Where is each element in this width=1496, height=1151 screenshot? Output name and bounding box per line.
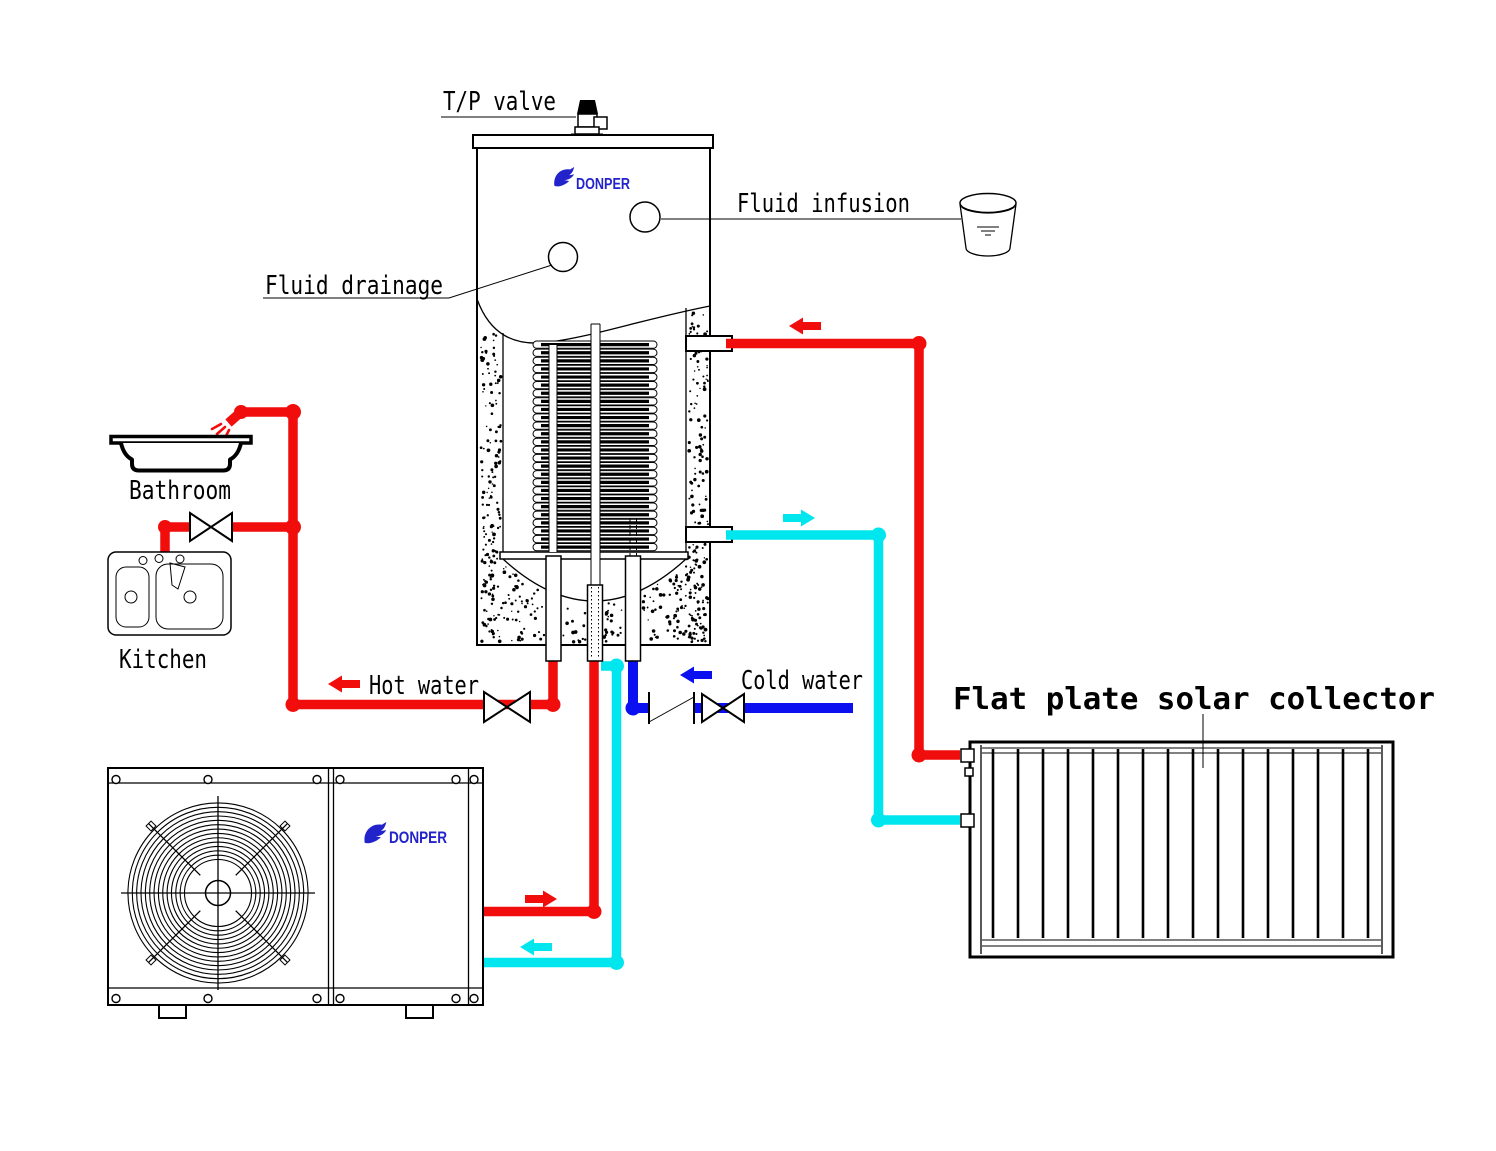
diagram-page: DONPER — [0, 0, 1496, 1146]
pipe-elbow-dot — [609, 955, 624, 970]
labels: T/P valve Fluid infusion Fluid drainage … — [119, 87, 1435, 717]
foot-left — [159, 1005, 186, 1018]
fluid-cup-icon — [960, 194, 1016, 257]
flow-arrow-left-icon — [520, 939, 552, 956]
stub-cold-water — [626, 556, 641, 661]
pipe-elbow-dot — [626, 701, 641, 716]
label-solar-collector-title: Flat plate solar collector — [953, 682, 1435, 717]
tp-valve-cap — [577, 100, 598, 114]
collector-port-hot — [961, 749, 974, 762]
internal-pipe-center — [591, 324, 600, 585]
pipe-elbow-dot — [871, 528, 886, 543]
pipe-elbow-dot — [912, 748, 927, 763]
pipe-elbow-dot — [286, 697, 301, 712]
cold-water-valve-icon — [702, 694, 744, 722]
pipe-elbow-dot — [546, 697, 561, 712]
pipe-tee-dot — [285, 519, 301, 535]
tp-valve-icon — [571, 100, 607, 135]
label-fluid-infusion: Fluid infusion — [737, 189, 910, 219]
heat-pump-cabinet — [108, 768, 483, 1005]
fan-grille — [121, 796, 315, 990]
fluid-drainage-port — [549, 243, 578, 272]
flow-arrow-right-icon — [783, 510, 815, 527]
hot-water-valve-icon — [484, 692, 530, 722]
diagram-canvas: DONPER — [0, 0, 1496, 1146]
label-hot-water: Hot water — [369, 671, 479, 701]
stub-hot-water — [546, 556, 561, 661]
fluid-infusion-port — [630, 202, 660, 232]
pipe-elbow-dot — [912, 336, 927, 351]
heat-pump-brand-text: DONPER — [389, 828, 447, 847]
flow-arrow-left-icon — [328, 676, 360, 693]
flow-arrow-left-icon — [789, 318, 821, 335]
flow-arrow-right-icon — [525, 891, 557, 908]
label-kitchen: Kitchen — [119, 645, 207, 675]
kitchen-sink-icon — [108, 552, 231, 635]
solar-collector — [961, 742, 1393, 957]
tank-port-solar-hot — [686, 336, 732, 351]
bathtub-icon — [111, 437, 251, 471]
collector-port-return — [961, 814, 974, 827]
tank-lid — [473, 135, 713, 148]
foot-right — [406, 1005, 433, 1018]
collector-port-small — [965, 768, 973, 776]
tp-valve-base — [575, 127, 599, 134]
storage-tank: DONPER — [473, 135, 732, 645]
flow-arrow-left-icon — [680, 667, 712, 684]
kitchen-valve-icon — [190, 513, 232, 541]
pipe-elbow-dot — [609, 659, 624, 674]
pipe-elbow-dot — [871, 813, 886, 828]
stub-heatpump — [588, 585, 603, 661]
tank-port-solar-return — [686, 527, 732, 542]
label-tp-valve: T/P valve — [443, 87, 556, 117]
cold-water-check-valve-icon — [649, 692, 694, 724]
label-cold-water: Cold water — [741, 666, 863, 696]
label-bathroom: Bathroom — [129, 476, 231, 506]
pipe-heatpump-hot — [481, 660, 594, 912]
pipe-elbow-dot — [285, 404, 301, 420]
collector-frame — [970, 742, 1393, 957]
pipe-elbow-dot — [587, 904, 602, 919]
internal-pipe-left — [549, 345, 557, 552]
tank-brand-text: DONPER — [576, 176, 630, 193]
heat-pump-unit: DONPER — [108, 768, 483, 1018]
label-fluid-drainage: Fluid drainage — [265, 271, 443, 301]
pipe-elbow-dot — [158, 520, 172, 534]
pipe-elbow-dot — [234, 405, 248, 419]
